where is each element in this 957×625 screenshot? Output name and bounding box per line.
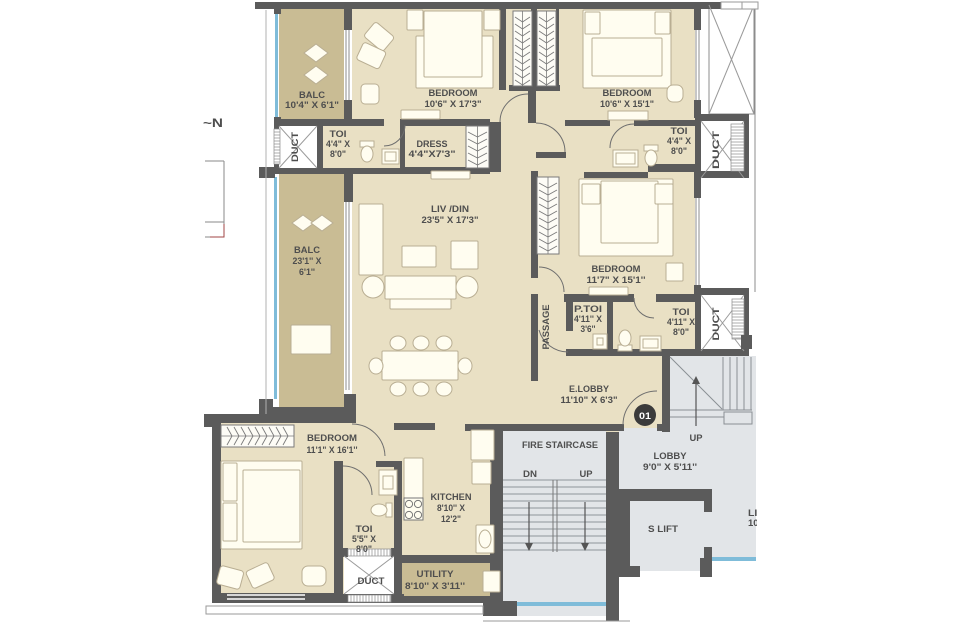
svg-text:DUCT: DUCT xyxy=(290,132,300,162)
svg-text:11'1" X 16'1'': 11'1" X 16'1'' xyxy=(307,445,358,455)
svg-text:23'1'' X: 23'1'' X xyxy=(293,256,323,266)
svg-text:11'10" X 6'3": 11'10" X 6'3" xyxy=(561,395,618,405)
svg-text:TOI: TOI xyxy=(671,126,688,136)
svg-text:E.LOBBY: E.LOBBY xyxy=(569,384,609,394)
svg-text:LOBBY: LOBBY xyxy=(654,451,687,461)
svg-text:P.TOI: P.TOI xyxy=(574,304,602,314)
svg-text:10'4" X 6'1": 10'4" X 6'1" xyxy=(285,100,339,110)
svg-text:23'5" X 17'3": 23'5" X 17'3" xyxy=(422,215,479,225)
svg-text:8'10'' X 3'11'': 8'10'' X 3'11'' xyxy=(405,581,465,591)
svg-text:UP: UP xyxy=(580,469,593,479)
svg-text:4'11" X: 4'11" X xyxy=(667,317,696,327)
svg-text:UTILITY: UTILITY xyxy=(417,569,454,579)
svg-text:BALC: BALC xyxy=(299,90,325,100)
svg-text:4'4" X: 4'4" X xyxy=(326,139,351,149)
svg-text:BEDROOM: BEDROOM xyxy=(603,88,652,98)
svg-text:KITCHEN: KITCHEN xyxy=(431,492,472,502)
svg-text:10'6" X 17'3": 10'6" X 17'3" xyxy=(425,99,482,109)
svg-text:TOI: TOI xyxy=(356,524,373,534)
svg-text:6'1'': 6'1'' xyxy=(299,267,315,277)
svg-text:~N: ~N xyxy=(203,116,223,130)
svg-text:LIV /DIN: LIV /DIN xyxy=(431,204,469,214)
svg-text:BALC: BALC xyxy=(294,245,320,255)
svg-text:3'6'': 3'6'' xyxy=(581,324,596,334)
svg-text:8'0": 8'0" xyxy=(673,327,689,337)
svg-text:8'0": 8'0" xyxy=(330,149,346,159)
svg-text:FIRE STAIRCASE: FIRE STAIRCASE xyxy=(522,440,598,450)
svg-text:4'4" X: 4'4" X xyxy=(667,136,692,146)
svg-text:DRESS: DRESS xyxy=(417,139,448,149)
svg-text:11'7" X 15'1'': 11'7" X 15'1'' xyxy=(587,275,646,285)
svg-text:01: 01 xyxy=(639,411,652,422)
svg-text:DUCT: DUCT xyxy=(711,130,721,169)
svg-text:BEDROOM: BEDROOM xyxy=(307,433,357,443)
svg-text:S LIFT: S LIFT xyxy=(648,524,678,534)
svg-text:8'0": 8'0" xyxy=(356,544,372,554)
svg-text:PASSAGE: PASSAGE xyxy=(541,305,551,350)
svg-text:9'0" X 5'11'': 9'0" X 5'11'' xyxy=(643,462,697,472)
svg-text:12'2": 12'2" xyxy=(441,514,461,524)
svg-text:BEDROOM: BEDROOM xyxy=(429,88,478,98)
svg-text:DUCT: DUCT xyxy=(358,576,385,586)
svg-text:DUCT: DUCT xyxy=(711,307,721,340)
svg-text:5'5'' X: 5'5'' X xyxy=(352,534,377,544)
svg-text:UP: UP xyxy=(690,433,703,443)
svg-text:8'0": 8'0" xyxy=(671,146,687,156)
svg-text:4'11'' X: 4'11'' X xyxy=(574,314,603,324)
svg-text:10'6" X 15'1": 10'6" X 15'1" xyxy=(600,99,654,109)
svg-text:DN: DN xyxy=(523,469,537,479)
svg-text:4'4"X7'3": 4'4"X7'3" xyxy=(409,149,456,159)
svg-text:BEDROOM: BEDROOM xyxy=(592,264,641,274)
svg-text:TOI: TOI xyxy=(330,129,347,139)
svg-text:8'10'' X: 8'10'' X xyxy=(437,503,466,513)
svg-text:TOI: TOI xyxy=(673,307,690,317)
